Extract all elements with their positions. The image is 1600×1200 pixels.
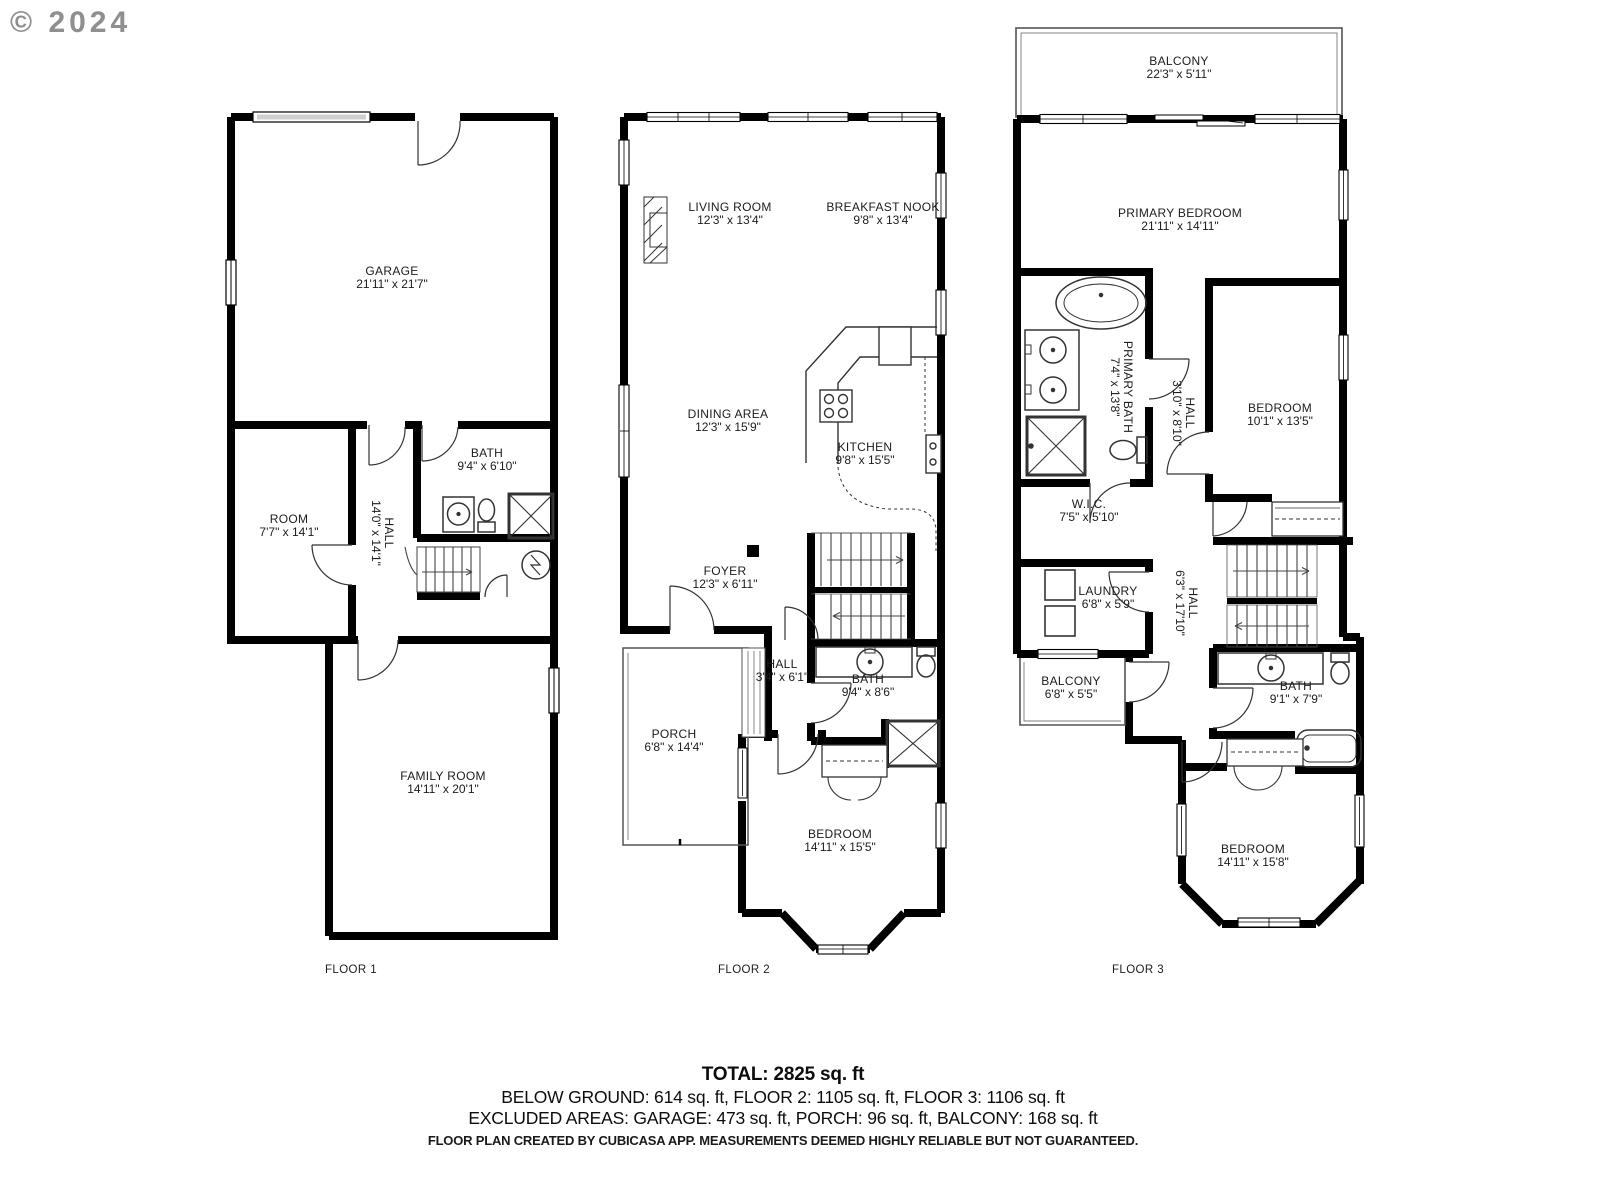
room-label-foyer: FOYER12'3" x 6'11" [693,565,758,591]
room-label-bedroom-large: BEDROOM14'11" x 15'8" [1217,843,1289,869]
room-label-kitchen: KITCHEN9'8" x 15'5" [835,441,894,467]
stove-icon [820,390,852,422]
floor1-windows [226,112,559,713]
bedroom-small-closet [1272,502,1343,536]
area-summary: TOTAL: 2825 sq. ft BELOW GROUND: 614 sq.… [0,1064,1566,1129]
room-label-primary-bedroom: PRIMARY BEDROOM21'11" x 14'11" [1118,207,1242,233]
bathtub-icon [1297,730,1361,767]
room-label-living-room: LIVING ROOM12'3" x 13'4" [688,201,771,227]
copyright-watermark: © 2024 [10,6,131,40]
floor1-stairs [405,547,480,592]
fireplace-icon [644,197,667,263]
kitchen-sink-icon [926,435,941,473]
floor1-plan: GARAGE21'11" x 21'7" ROOM7'7" x 14'1" HA… [227,113,558,940]
refrigerator-icon [879,327,911,365]
room-label-bath: BATH9'4" x 8'6" [842,673,894,699]
floor2-tag: FLOOR 2 [718,964,770,976]
room-label-balcony-small: BALCONY6'8" x 5'5" [1041,675,1100,701]
room-label-hall-lower: HALL6'3" x 17'10" [1173,570,1199,636]
room-label-family-room: FAMILY ROOM14'11" x 20'1" [400,770,486,796]
floor3-tag: FLOOR 3 [1112,964,1164,976]
room-label-balcony-top: BALCONY22'3" x 5'11" [1147,55,1212,81]
floor-plan-page: { "watermark": "© 2024", "floor1": { "la… [0,0,1600,1200]
room-label-hall-upper: HALL3'10" x 8'10" [1170,380,1196,446]
floor2-closet [822,745,887,800]
washer-dryer-icons [1045,570,1075,636]
room-label-garage: GARAGE21'11" x 21'7" [356,265,428,291]
total-area: TOTAL: 2825 sq. ft [0,1064,1566,1085]
room-label-wic: W.I.C.7'5" x 5'10" [1059,498,1118,524]
toilet-icon [1331,653,1349,684]
bathtub-oval-icon [1056,277,1146,329]
room-label-primary-bath: PRIMARY BATH7'4" x 13'8" [1108,341,1134,433]
column-marker [747,545,759,557]
room-label-bedroom: BEDROOM14'11" x 15'5" [804,828,876,854]
floor1-tag: FLOOR 1 [325,964,377,976]
disclaimer-text: FLOOR PLAN CREATED BY CUBICASA APP. MEAS… [0,1133,1566,1148]
room-label-porch: PORCH6'8" x 14'4" [644,728,703,754]
electrical-panel-icon [522,551,550,579]
shower-icon [887,721,939,766]
floor2-drawing [620,113,945,955]
room-label-bedroom-small: BEDROOM10'1" x 13'5" [1247,402,1313,428]
toilet-icon [1110,437,1147,463]
room-label-dining-area: DINING AREA12'3" x 15'9" [688,408,769,434]
room-label-hall: HALL14'0" x 14'1" [369,500,395,566]
floor3-drawing [1013,25,1365,955]
room-label-bath: BATH9'4" x 6'10" [457,447,516,473]
floor-areas-line: BELOW GROUND: 614 sq. ft, FLOOR 2: 1105 … [0,1087,1566,1108]
floor3-plan: BALCONY22'3" x 5'11" PRIMARY BEDROOM21'1… [1013,25,1365,955]
vanity-counter [1025,330,1079,410]
room-label-bath: BATH9'1" x 7'9" [1270,680,1322,706]
room-label-breakfast-nook: BREAKFAST NOOK9'8" x 13'4" [826,201,939,227]
room-label-hall: HALL3'4" x 6'1" [756,658,808,684]
kitchen-counter [806,327,941,551]
toilet-icon [917,647,935,677]
bedroom-large-closet [1227,739,1303,790]
floor2-stairs [811,533,911,639]
excluded-areas-line: EXCLUDED AREAS: GARAGE: 473 sq. ft, PORC… [0,1108,1566,1129]
room-label-room: ROOM7'7" x 14'1" [259,513,318,539]
shower-icon [1027,417,1085,475]
floor3-stairs [1227,545,1317,647]
floor2-plan: LIVING ROOM12'3" x 13'4" BREAKFAST NOOK9… [620,113,945,955]
shower-icon [509,494,553,538]
room-label-laundry: LAUNDRY6'8" x 5'9" [1078,585,1137,611]
toilet-icon [478,499,495,532]
